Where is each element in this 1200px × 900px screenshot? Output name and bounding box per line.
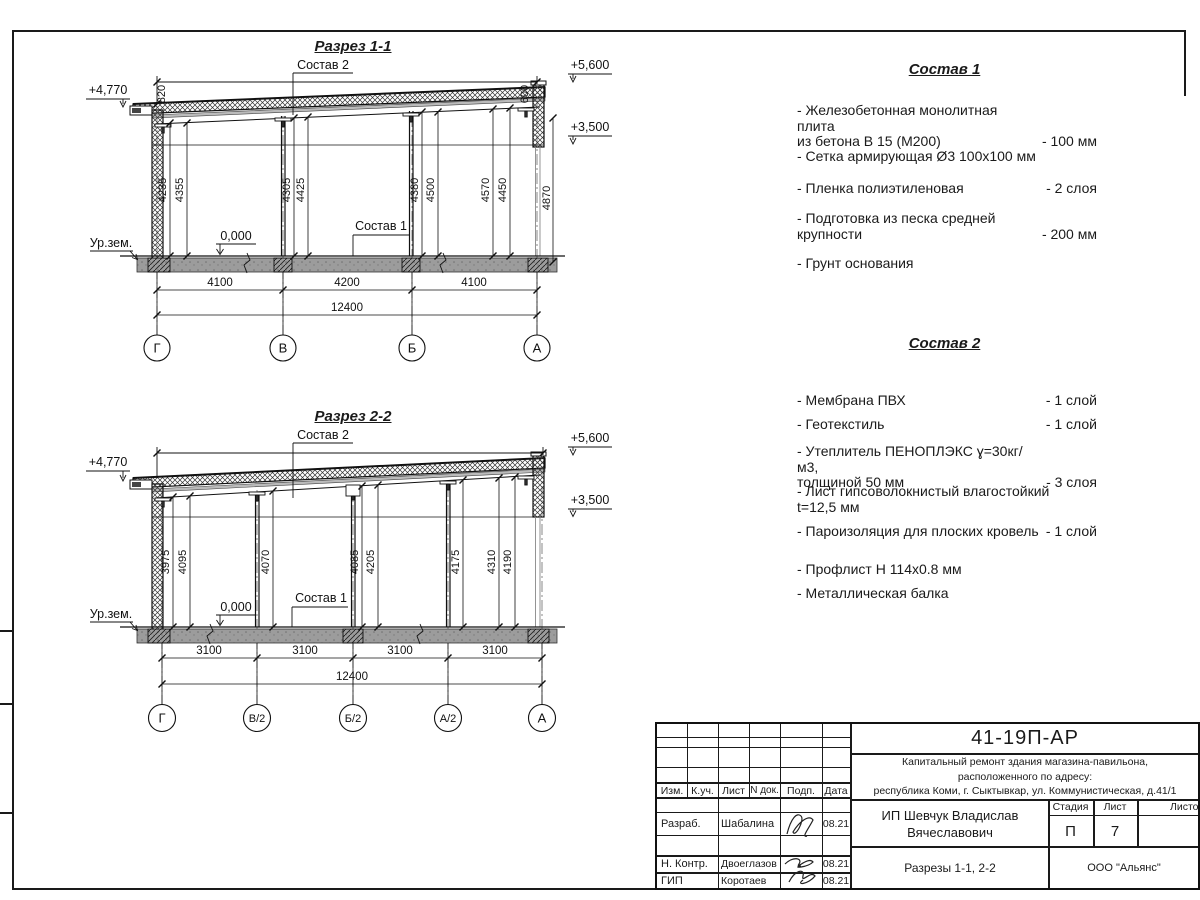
sostav1-title: Состав 1 [797, 61, 1092, 78]
parapet-dim: 820 [156, 85, 168, 103]
list-item: - Пленка полиэтиленовая - 2 слоя [797, 181, 1097, 197]
signature-razrab [781, 808, 823, 842]
list-item-text: - Пароизоляция для плоских кровель [797, 524, 1039, 540]
ground-level-arrow [90, 251, 138, 260]
vdim-label: 4190 [502, 550, 514, 574]
ground-level-label: Ур.зем. [90, 607, 132, 621]
row-role: Разраб. [661, 813, 717, 835]
col-data: Дата [822, 784, 850, 797]
list-item-text: - Железобетонная монолитная плита из бет… [797, 103, 1036, 150]
sheet-title: Разрезы 1-1, 2-2 [852, 848, 1048, 888]
zero-level-label: 0,000 [220, 600, 251, 614]
total-dim: 12400 [336, 671, 368, 683]
drawing-sheet: { "section1": { "title": "Разрез 1-1", "… [0, 0, 1200, 900]
stage-value: П [1048, 816, 1093, 846]
vdim-label: 3975 [160, 550, 172, 574]
list-item: - Грунт основания [797, 256, 1097, 272]
list-item-value: - 1 слой [1040, 393, 1097, 409]
list-item-value: - 100 мм [1036, 134, 1097, 150]
col-list: Лист [718, 784, 749, 797]
vdim-label: 4205 [365, 550, 377, 574]
elevation-left: +4,770 [89, 455, 128, 469]
beam-profiles [155, 108, 534, 133]
elevation-top-right: +5,600 [571, 431, 610, 445]
ground-level-arrow [90, 622, 138, 631]
sostav2-title: Состав 2 [797, 335, 1092, 352]
sostav1-leader [353, 235, 409, 256]
list-item: - Геотекстиль - 1 слой [797, 417, 1097, 433]
client-name: ИП Шевчук Владислав Вячеславович [852, 801, 1048, 846]
sostav2-callout: Состав 2 [297, 58, 349, 72]
axis-centerlines [157, 90, 537, 336]
list-item-value: - 1 слой [1040, 417, 1097, 433]
list-item: - Металлическая балка [797, 586, 1097, 602]
ground-level-label: Ур.зем. [90, 236, 132, 250]
col-izm: Изм. [657, 784, 687, 797]
list-item: - Железобетонная монолитная плита из бет… [797, 103, 1097, 150]
list-item: - Профлист Н 114х0.8 мм [797, 562, 1097, 578]
axis-label: А [533, 341, 542, 356]
frame-tick [0, 812, 12, 814]
list-item-text: - Подготовка из песка средней крупности [797, 211, 996, 242]
span-dim: 4100 [207, 277, 233, 289]
list-item-text: - Грунт основания [797, 256, 914, 272]
elevation-mid-right-arrow [568, 509, 612, 517]
vdim-label: 4310 [486, 550, 498, 574]
row-role: ГИП [661, 873, 717, 888]
parapet-dim: 600 [519, 85, 531, 103]
right-parapet-wall [533, 84, 544, 147]
total-dim: 12400 [331, 302, 363, 314]
sheets-label: Листов [1139, 799, 1200, 815]
list-item-text: - Профлист Н 114х0.8 мм [797, 562, 962, 578]
frame-tick [0, 630, 12, 632]
elevation-left-arrow [86, 99, 130, 107]
list-item-text: - Сетка армирующая Ø3 100х100 мм [797, 149, 1036, 165]
list-item-text: - Металлическая балка [797, 586, 949, 602]
section2-drawing: Г В/2 Б/2 А/2 А 3100 3100 3100 3100 1240… [60, 390, 660, 760]
signature-nkontr [781, 852, 823, 888]
elevation-left-arrow [86, 471, 130, 481]
zero-level-label: 0,000 [220, 229, 251, 243]
elevation-top-right: +5,600 [571, 58, 610, 72]
frame-left-line [12, 30, 14, 890]
axis-label: В/2 [249, 713, 266, 725]
elevation-top-right-arrow [568, 74, 612, 82]
list-item: - Пароизоляция для плоских кровель - 1 с… [797, 524, 1097, 540]
list-item-text: - Пленка полиэтиленовая [797, 181, 964, 197]
section1-drawing: Г В Б А 4100 4200 4100 12400 4235 4355 4… [60, 20, 660, 380]
zero-level-arrow [216, 615, 256, 626]
vdim-label: 4085 [349, 550, 361, 574]
list-item: - Лист гипсоволокнистый влагостойкий t=1… [797, 484, 1097, 515]
right-parapet-wall [533, 455, 544, 517]
stage-label: Стадия [1048, 799, 1093, 815]
list-item-value: - 2 слоя [1040, 181, 1097, 197]
sheet-value: 7 [1093, 816, 1137, 846]
elevation-mid-right-arrow [568, 136, 612, 144]
list-item-value: - 1 слой [1040, 524, 1097, 540]
zero-level-arrow [216, 244, 256, 255]
project-description: Капитальный ремонт здания магазина-павил… [852, 755, 1198, 799]
vdim-label: 4570 [480, 178, 492, 202]
axis-label: Г [153, 341, 160, 356]
axis-label: Г [158, 711, 165, 726]
list-item: - Подготовка из песка средней крупности … [797, 211, 1097, 242]
vdim-label: 4070 [260, 550, 272, 574]
vdim-label: 4175 [450, 550, 462, 574]
axis-label: А/2 [440, 713, 457, 725]
span-dim: 3100 [292, 645, 318, 657]
sheet-label: Лист [1093, 799, 1137, 815]
vdim-label: 4305 [281, 178, 293, 202]
row-date: 08.21 [822, 873, 850, 888]
span-dim: 3100 [482, 645, 508, 657]
title-block: 41-19П-АР Капитальный ремонт здания мага… [655, 722, 1200, 890]
row-name: Шабалина [721, 813, 779, 835]
axis-label: А [538, 711, 547, 726]
list-item-text: - Лист гипсоволокнистый влагостойкий t=1… [797, 484, 1049, 515]
span-dim: 4200 [334, 277, 360, 289]
col-kuch: К.уч. [687, 784, 718, 797]
organization: ООО "Альянс" [1050, 848, 1198, 888]
floor-slab [137, 258, 557, 272]
row-name: Коротаев [721, 873, 781, 888]
axis-label: В [279, 341, 288, 356]
span-dim: 3100 [196, 645, 222, 657]
frame-right-stub [1184, 30, 1186, 96]
list-item: - Мембрана ПВХ - 1 слой [797, 393, 1097, 409]
row-date: 08.21 [822, 856, 850, 872]
span-dim: 4100 [461, 277, 487, 289]
axis-label: Б [408, 341, 417, 356]
axis-circles [144, 335, 550, 361]
sostav2-callout: Состав 2 [297, 428, 349, 442]
roof-edge-plate [132, 108, 141, 113]
list-item: - Сетка армирующая Ø3 100х100 мм [797, 149, 1097, 165]
span-dim: 3100 [387, 645, 413, 657]
vdim-label: 4450 [497, 178, 509, 202]
elevation-mid-right: +3,500 [571, 493, 610, 507]
list-item-value: - 200 мм [1036, 227, 1097, 243]
vdim-label: 4355 [174, 178, 186, 202]
frame-tick [0, 703, 12, 705]
vdim-label: 4500 [425, 178, 437, 202]
sostav1-leader [292, 607, 348, 627]
sostav1-callout: Состав 1 [295, 591, 347, 605]
row-name: Двоеглазов [721, 856, 781, 872]
list-item-text: - Мембрана ПВХ [797, 393, 906, 409]
elevation-mid-right: +3,500 [571, 120, 610, 134]
vdim-label: 4380 [409, 178, 421, 202]
row-date: 08.21 [822, 813, 850, 835]
col-ndok: N док. [749, 784, 780, 797]
doc-number: 41-19П-АР [852, 724, 1198, 753]
roof-edge-plate [132, 482, 141, 487]
vdim-label: 4095 [177, 550, 189, 574]
elevation-top-right-arrow [568, 447, 612, 455]
vdim-label: 4870 [541, 186, 553, 210]
list-item-text: - Геотекстиль [797, 417, 884, 433]
elevation-left: +4,770 [89, 83, 128, 97]
axis-label: Б/2 [345, 713, 361, 725]
vdim-label: 4235 [157, 178, 169, 202]
sostav1-callout: Состав 1 [355, 219, 407, 233]
col-podp: Подп. [780, 784, 822, 797]
vdim-label: 4425 [295, 178, 307, 202]
row-role: Н. Контр. [661, 856, 717, 872]
